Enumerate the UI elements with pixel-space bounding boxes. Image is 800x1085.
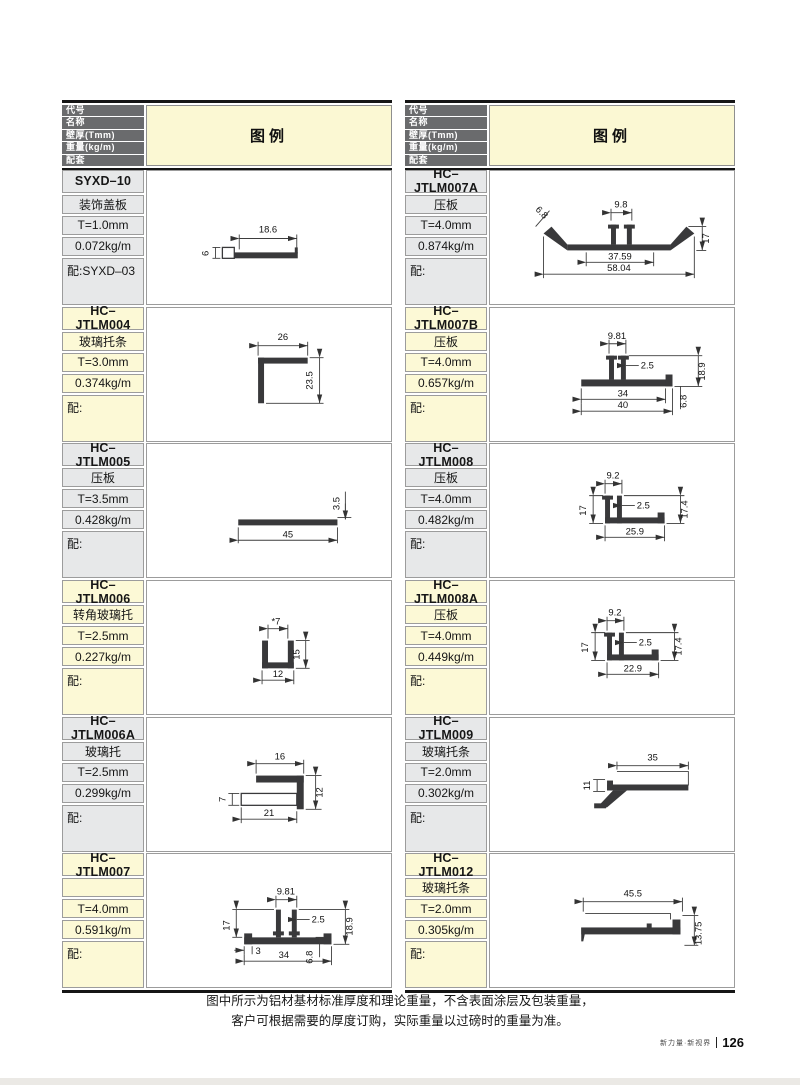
profile-match: 配:: [405, 531, 487, 578]
footer-divider: [716, 1037, 717, 1048]
profile-match: 配:: [405, 941, 487, 988]
legend-header: 图例: [146, 105, 392, 166]
header-row-thickness: 壁厚(Tmm): [405, 130, 487, 141]
table-row: HC–JTLM007A 压板 T=4.0mm 0.874kg/m 配:: [405, 170, 735, 305]
dim-label: 15: [291, 649, 302, 659]
dim-label: 7: [216, 796, 227, 801]
profile-thickness: T=4.0mm: [405, 353, 487, 372]
profile-weight: 0.072kg/m: [62, 237, 144, 256]
profile-thickness: T=2.5mm: [62, 626, 144, 645]
profile-match: 配:: [405, 258, 487, 305]
dim-label: 11: [581, 780, 592, 790]
dim-label: 2.5: [637, 500, 650, 511]
profile-name: 玻璃托条: [405, 742, 487, 761]
dim-label: 21: [264, 807, 274, 818]
dim-label: *7: [271, 616, 280, 627]
table-row: HC–JTLM006 转角玻璃托 T=2.5mm 0.227kg/m 配: *7: [62, 580, 392, 715]
profile-thickness: T=4.0mm: [62, 899, 144, 918]
dim-label: 17.4: [678, 501, 689, 519]
dim-label: 3: [255, 946, 260, 957]
header-row-match: 配套: [405, 155, 487, 166]
dim-label: 17: [579, 642, 590, 652]
profile-weight: 0.302kg/m: [405, 784, 487, 803]
header-row-code: 代号: [62, 105, 144, 116]
profile-match: 配:: [62, 395, 144, 442]
cross-section-drawing: 3.5 45: [147, 444, 391, 577]
profile-code: HC–JTLM006: [62, 580, 144, 603]
profile-thickness: T=3.0mm: [62, 353, 144, 372]
profile-weight: 0.299kg/m: [62, 784, 144, 803]
page-number: 126: [722, 1035, 744, 1050]
dim-label: 17.4: [672, 637, 683, 655]
legend-header: 图例: [489, 105, 735, 166]
dim-label: 6.8: [534, 204, 551, 221]
profile-name: 压板: [405, 605, 487, 624]
catalog-page: 代号 名称 壁厚(Tmm) 重量(kg/m) 配套 图例 SYXD–10 装饰盖…: [0, 0, 800, 1085]
cross-section-drawing: 26 23.5: [147, 308, 391, 441]
scan-edge: [0, 1078, 800, 1085]
dim-label: 6.8: [304, 951, 315, 964]
profile-diagram: 6.8 9.8 17 37.59 58.04: [489, 170, 735, 305]
profile-code: HC–JTLM005: [62, 443, 144, 466]
dim-label: 2.5: [312, 914, 325, 925]
dim-label: 45.5: [624, 888, 642, 899]
profile-diagram: 18.6 6: [146, 170, 392, 305]
header-row-weight: 重量(kg/m): [405, 142, 487, 153]
spec-table-right: 代号 名称 壁厚(Tmm) 重量(kg/m) 配套 图例 HC–JTLM007A…: [405, 100, 735, 993]
dim-label: 9.81: [277, 886, 295, 897]
table-row: SYXD–10 装饰盖板 T=1.0mm 0.072kg/m 配:SYXD–03: [62, 170, 392, 305]
profile-name: 装饰盖板: [62, 195, 144, 214]
dim-label: 12: [314, 787, 325, 797]
profile-match: 配:SYXD–03: [62, 258, 144, 305]
footer-note-line2: 客户可根据需要的厚度订购，实际重量以过磅时的重量为准。: [0, 1011, 800, 1031]
cross-section-drawing: 45.5 13.75: [490, 854, 734, 987]
profile-thickness: T=2.0mm: [405, 899, 487, 918]
profile-diagram: 26 23.5: [146, 307, 392, 442]
profile-weight: 0.374kg/m: [62, 374, 144, 393]
cross-section-drawing: *7 15 12: [147, 581, 391, 714]
profile-weight: 0.428kg/m: [62, 510, 144, 529]
dim-label: 18.9: [343, 918, 354, 936]
cross-section-drawing: 18.6 6: [147, 171, 391, 304]
table-body: HC–JTLM007A 压板 T=4.0mm 0.874kg/m 配:: [405, 170, 735, 993]
profile-code: HC–JTLM004: [62, 307, 144, 330]
profile-thickness: T=2.0mm: [405, 763, 487, 782]
profile-match: 配:: [405, 668, 487, 715]
profile-code: HC–JTLM009: [405, 717, 487, 740]
header-label-column: 代号 名称 壁厚(Tmm) 重量(kg/m) 配套: [405, 105, 487, 166]
dim-label: 17: [220, 921, 231, 931]
profile-name: 玻璃托条: [405, 878, 487, 897]
dim-label: 9.8: [614, 199, 627, 210]
dim-label: 45: [283, 529, 293, 540]
profile-name: 压板: [62, 468, 144, 487]
profile-name: 压板: [405, 332, 487, 351]
profile-name: [62, 878, 144, 897]
profile-diagram: 3.5 45: [146, 443, 392, 578]
profile-code: SYXD–10: [62, 170, 144, 193]
dim-label: 17: [700, 233, 711, 243]
profile-diagram: 45.5 13.75: [489, 853, 735, 988]
header-row-thickness: 壁厚(Tmm): [62, 130, 144, 141]
header-row-weight: 重量(kg/m): [62, 142, 144, 153]
footer-note-line1: 图中所示为铝材基材标准厚度和理论重量，不含表面涂层及包装重量，: [0, 991, 800, 1011]
dim-label: 26: [278, 330, 288, 341]
profile-name: 压板: [405, 468, 487, 487]
dim-label: 16: [275, 750, 285, 761]
profile-diagram: 9.81 2.5 17 18.9 3 34: [146, 853, 392, 988]
profile-thickness: T=4.0mm: [405, 626, 487, 645]
cross-section-drawing: 9.81 2.5 17 18.9 3 34: [147, 854, 391, 987]
brand-slogan: 新力量·新视界: [660, 1038, 711, 1048]
profile-diagram: *7 15 12: [146, 580, 392, 715]
profile-code: HC–JTLM007A: [405, 170, 487, 193]
table-row: HC–JTLM008 压板 T=4.0mm 0.482kg/m 配:: [405, 443, 735, 578]
profile-weight: 0.591kg/m: [62, 920, 144, 939]
profile-weight: 0.482kg/m: [405, 510, 487, 529]
profile-code: HC–JTLM007: [62, 853, 144, 876]
profile-diagram: 35 11: [489, 717, 735, 852]
dim-label: 58.04: [607, 262, 631, 273]
profile-weight: 0.227kg/m: [62, 647, 144, 666]
cross-section-drawing: 9.2 17 2.5 17.4 22.9: [490, 581, 734, 714]
cross-section-drawing: 16 7 12 21: [147, 718, 391, 851]
profile-thickness: T=4.0mm: [405, 216, 487, 235]
profile-match: 配:: [62, 531, 144, 578]
profile-weight: 0.657kg/m: [405, 374, 487, 393]
dim-label: 6: [199, 251, 210, 256]
table-row: HC–JTLM008A 压板 T=4.0mm 0.449kg/m 配:: [405, 580, 735, 715]
header-row-code: 代号: [405, 105, 487, 116]
table-header: 代号 名称 壁厚(Tmm) 重量(kg/m) 配套 图例: [405, 100, 735, 170]
profile-match: 配:: [62, 668, 144, 715]
cross-section-drawing: 35 11: [490, 718, 734, 851]
dim-label: 35: [647, 751, 657, 762]
page-footer: 新力量·新视界 126: [0, 1035, 744, 1050]
dim-label: 13.75: [692, 922, 703, 946]
profile-diagram: 9.2 17 2.5 17.4 22.9: [489, 580, 735, 715]
profile-weight: 0.874kg/m: [405, 237, 487, 256]
profile-name: 玻璃托: [62, 742, 144, 761]
table-body: SYXD–10 装饰盖板 T=1.0mm 0.072kg/m 配:SYXD–03: [62, 170, 392, 993]
profile-thickness: T=1.0mm: [62, 216, 144, 235]
profile-thickness: T=2.5mm: [62, 763, 144, 782]
table-header: 代号 名称 壁厚(Tmm) 重量(kg/m) 配套 图例: [62, 100, 392, 170]
dim-label: 34: [279, 950, 289, 961]
profile-diagram: 9.2 17 2.5 17.4 25.9: [489, 443, 735, 578]
dim-label: 40: [618, 399, 628, 410]
dim-label: 9.2: [608, 607, 621, 618]
profile-match: 配:: [405, 805, 487, 852]
dim-label: 17: [577, 506, 588, 516]
dim-label: 18.9: [696, 362, 707, 380]
profile-name: 压板: [405, 195, 487, 214]
dim-label: 22.9: [624, 662, 642, 673]
dim-label: 2.5: [639, 637, 652, 648]
profile-name: 玻璃托条: [62, 332, 144, 351]
dim-label: 23.5: [304, 371, 315, 389]
dim-label: 2.5: [641, 359, 654, 370]
spec-table-left: 代号 名称 壁厚(Tmm) 重量(kg/m) 配套 图例 SYXD–10 装饰盖…: [62, 100, 392, 993]
profile-code: HC–JTLM008: [405, 443, 487, 466]
table-row: HC–JTLM006A 玻璃托 T=2.5mm 0.299kg/m 配: 16: [62, 717, 392, 852]
profile-match: 配:: [62, 805, 144, 852]
header-row-name: 名称: [405, 117, 487, 128]
profile-diagram: 16 7 12 21: [146, 717, 392, 852]
cross-section-drawing: 6.8 9.8 17 37.59 58.04: [490, 171, 734, 304]
table-row: HC–JTLM007B 压板 T=4.0mm 0.657kg/m 配:: [405, 307, 735, 442]
profile-match: 配:: [405, 395, 487, 442]
cross-section-drawing: 9.81 2.5 18.9 34 40 6.8: [490, 308, 734, 441]
dim-label: 9.2: [606, 470, 619, 481]
dim-label: 12: [273, 668, 283, 679]
footer-note: 图中所示为铝材基材标准厚度和理论重量，不含表面涂层及包装重量， 客户可根据需要的…: [0, 991, 800, 1031]
profile-code: HC–JTLM007B: [405, 307, 487, 330]
dim-label: 37.59: [608, 250, 632, 261]
dim-label: 34: [618, 387, 628, 398]
header-row-name: 名称: [62, 117, 144, 128]
profile-code: HC–JTLM008A: [405, 580, 487, 603]
profile-code: HC–JTLM012: [405, 853, 487, 876]
dim-label: 6.8: [677, 394, 688, 407]
profile-code: HC–JTLM006A: [62, 717, 144, 740]
profile-weight: 0.305kg/m: [405, 920, 487, 939]
table-row: HC–JTLM005 压板 T=3.5mm 0.428kg/m 配: 3.5: [62, 443, 392, 578]
table-row: HC–JTLM004 玻璃托条 T=3.0mm 0.374kg/m 配: 26: [62, 307, 392, 442]
profile-thickness: T=3.5mm: [62, 489, 144, 508]
dim-label: 25.9: [626, 526, 644, 537]
profile-thickness: T=4.0mm: [405, 489, 487, 508]
table-row: HC–JTLM009 玻璃托条 T=2.0mm 0.302kg/m 配:: [405, 717, 735, 852]
header-row-match: 配套: [62, 155, 144, 166]
dim-label: 3.5: [330, 497, 341, 510]
profile-match: 配:: [62, 941, 144, 988]
profile-name: 转角玻璃托: [62, 605, 144, 624]
profile-weight: 0.449kg/m: [405, 647, 487, 666]
profile-diagram: 9.81 2.5 18.9 34 40 6.8: [489, 307, 735, 442]
header-label-column: 代号 名称 壁厚(Tmm) 重量(kg/m) 配套: [62, 105, 144, 166]
dim-label: 9.81: [608, 329, 626, 340]
dim-label: 18.6: [259, 223, 277, 234]
cross-section-drawing: 9.2 17 2.5 17.4 25.9: [490, 444, 734, 577]
table-row: HC–JTLM007 T=4.0mm 0.591kg/m 配:: [62, 853, 392, 988]
table-row: HC–JTLM012 玻璃托条 T=2.0mm 0.305kg/m 配:: [405, 853, 735, 988]
